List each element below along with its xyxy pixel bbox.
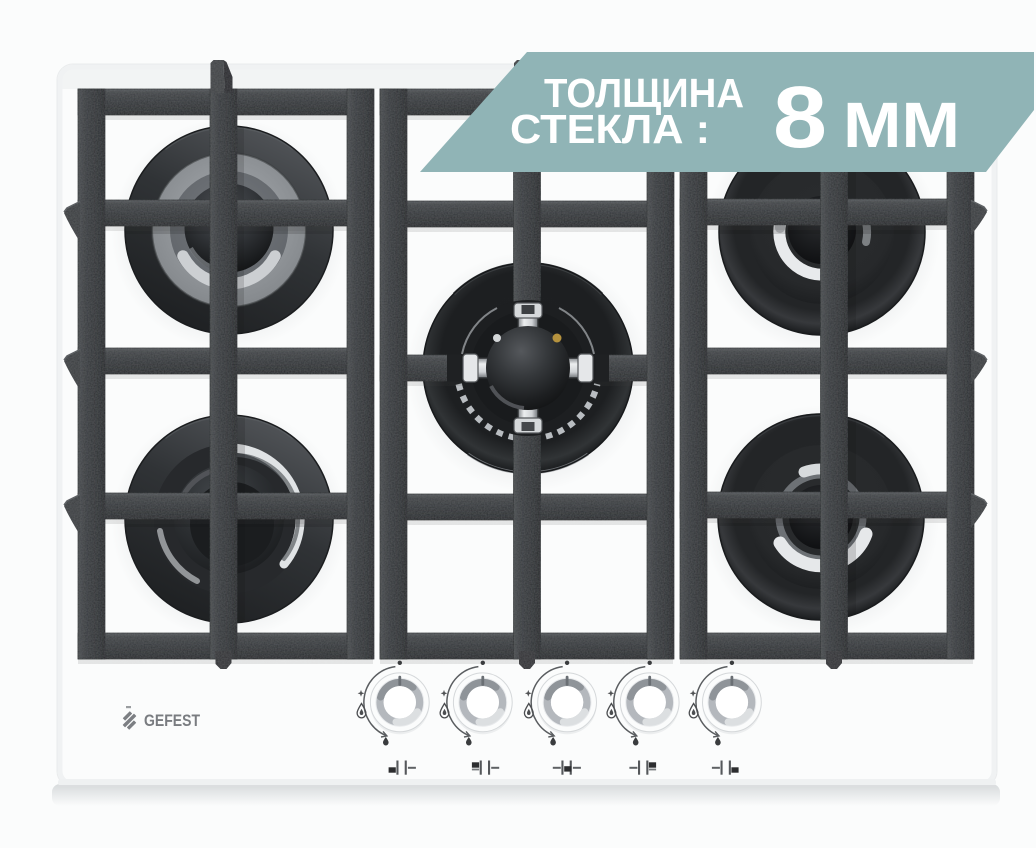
svg-text:8: 8 xyxy=(773,69,827,166)
svg-text:GEFEST: GEFEST xyxy=(144,712,200,730)
svg-text:ММ: ММ xyxy=(843,89,960,161)
svg-text:СТЕКЛА :: СТЕКЛА : xyxy=(510,106,710,152)
